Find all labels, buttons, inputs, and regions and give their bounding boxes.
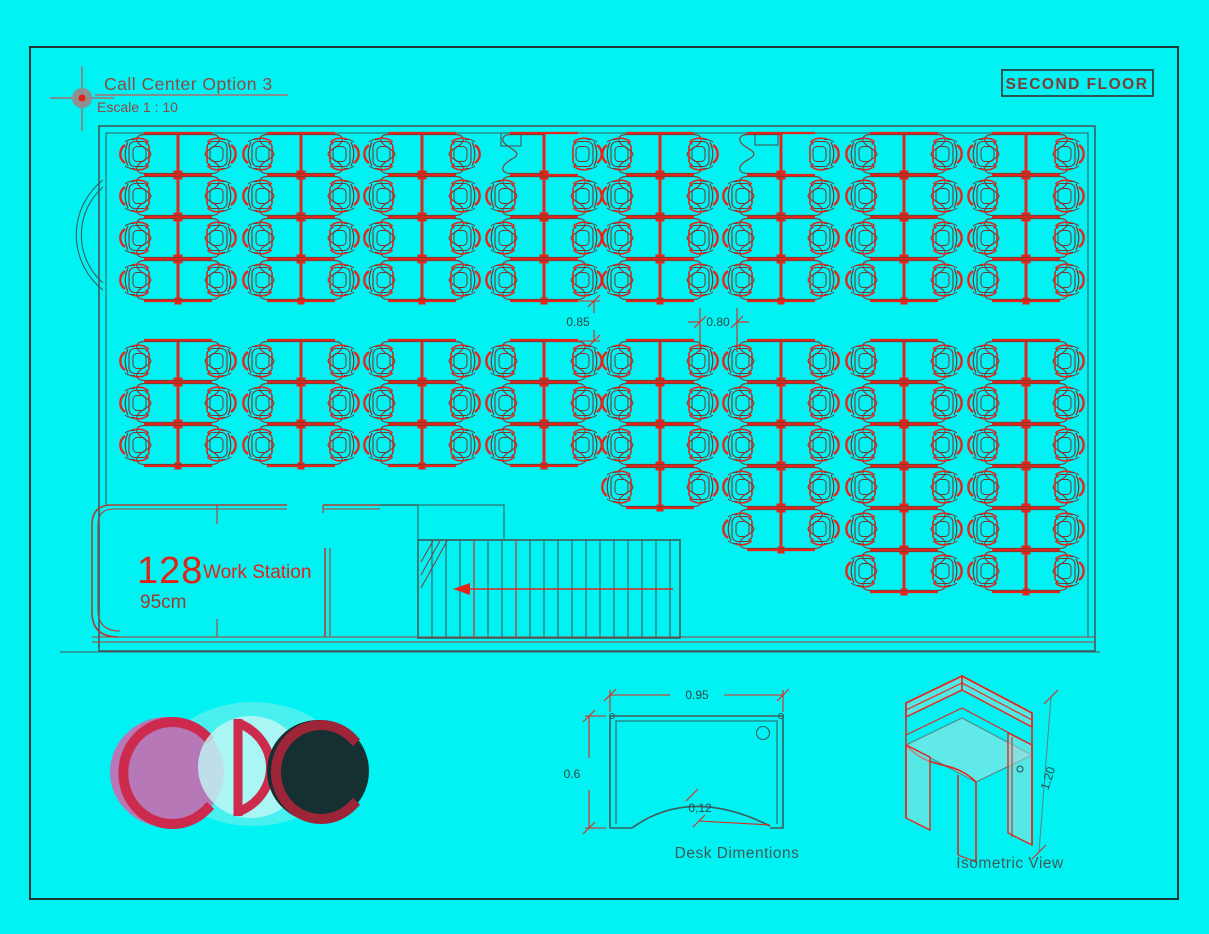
- workstation-cluster: [968, 133, 1083, 305]
- workstation-cluster: [602, 340, 717, 512]
- desk-height-label: 95cm: [140, 592, 186, 613]
- stair-landing: [418, 505, 504, 540]
- cdc-logo: [110, 702, 369, 827]
- workstation-cluster: [486, 340, 601, 470]
- floor-label: SECOND FLOOR: [1006, 76, 1149, 93]
- workstation-label: Work Station: [203, 562, 311, 583]
- workstation-cluster: [120, 340, 235, 470]
- workstation-count: 128: [137, 550, 203, 592]
- dim-0-85: 0.85: [566, 315, 590, 329]
- workstation-cluster: [723, 133, 838, 305]
- plan-annotation: 128 Work Station 95cm: [137, 550, 311, 613]
- workstation-cluster: [723, 340, 838, 554]
- workstation-cluster: [846, 340, 961, 596]
- desk-detail-drawing: 0.95 0.6 0,12 Desk Dimentions: [564, 688, 800, 862]
- grommet-hole: [757, 727, 770, 740]
- drawing-scale: Escale 1 : 10: [97, 99, 178, 115]
- dim-desk-curve: 0,12: [688, 801, 712, 815]
- workstation-cluster: [846, 133, 961, 305]
- isometric-caption: Isometric View: [956, 855, 1064, 872]
- workstation-clusters: [120, 133, 1083, 596]
- drawing-sheet: Call Center Option 3 Escale 1 : 10 SECON…: [0, 0, 1209, 934]
- dim-0-80: 0.80: [706, 315, 730, 329]
- desk-detail-caption: Desk Dimentions: [675, 845, 800, 862]
- dim-iso-height: 1.20: [1038, 765, 1059, 792]
- workstation-cluster: [243, 340, 358, 470]
- drawing-title: Call Center Option 3: [104, 74, 273, 94]
- arrowhead: [453, 583, 470, 595]
- dim-desk-width: 0.95: [685, 688, 709, 702]
- workstation-cluster: [364, 133, 479, 305]
- workstation-cluster: [120, 133, 235, 305]
- title-block: Call Center Option 3 Escale 1 : 10: [50, 66, 288, 131]
- stairs: [380, 505, 680, 638]
- workstation-cluster: [602, 133, 717, 305]
- workstation-cluster: [968, 340, 1083, 596]
- floor-plan-canvas: Call Center Option 3 Escale 1 : 10 SECON…: [0, 0, 1209, 934]
- floor-label-box: SECOND FLOOR: [1002, 70, 1153, 96]
- isometric-view: 1.20 Isometric View: [906, 676, 1064, 872]
- workstation-cluster: [364, 340, 479, 470]
- dim-desk-depth: 0.6: [564, 767, 581, 781]
- plan-dimensions: 0.85 0.80: [548, 295, 749, 352]
- workstation-cluster: [243, 133, 358, 305]
- workstation-cluster: [486, 133, 601, 305]
